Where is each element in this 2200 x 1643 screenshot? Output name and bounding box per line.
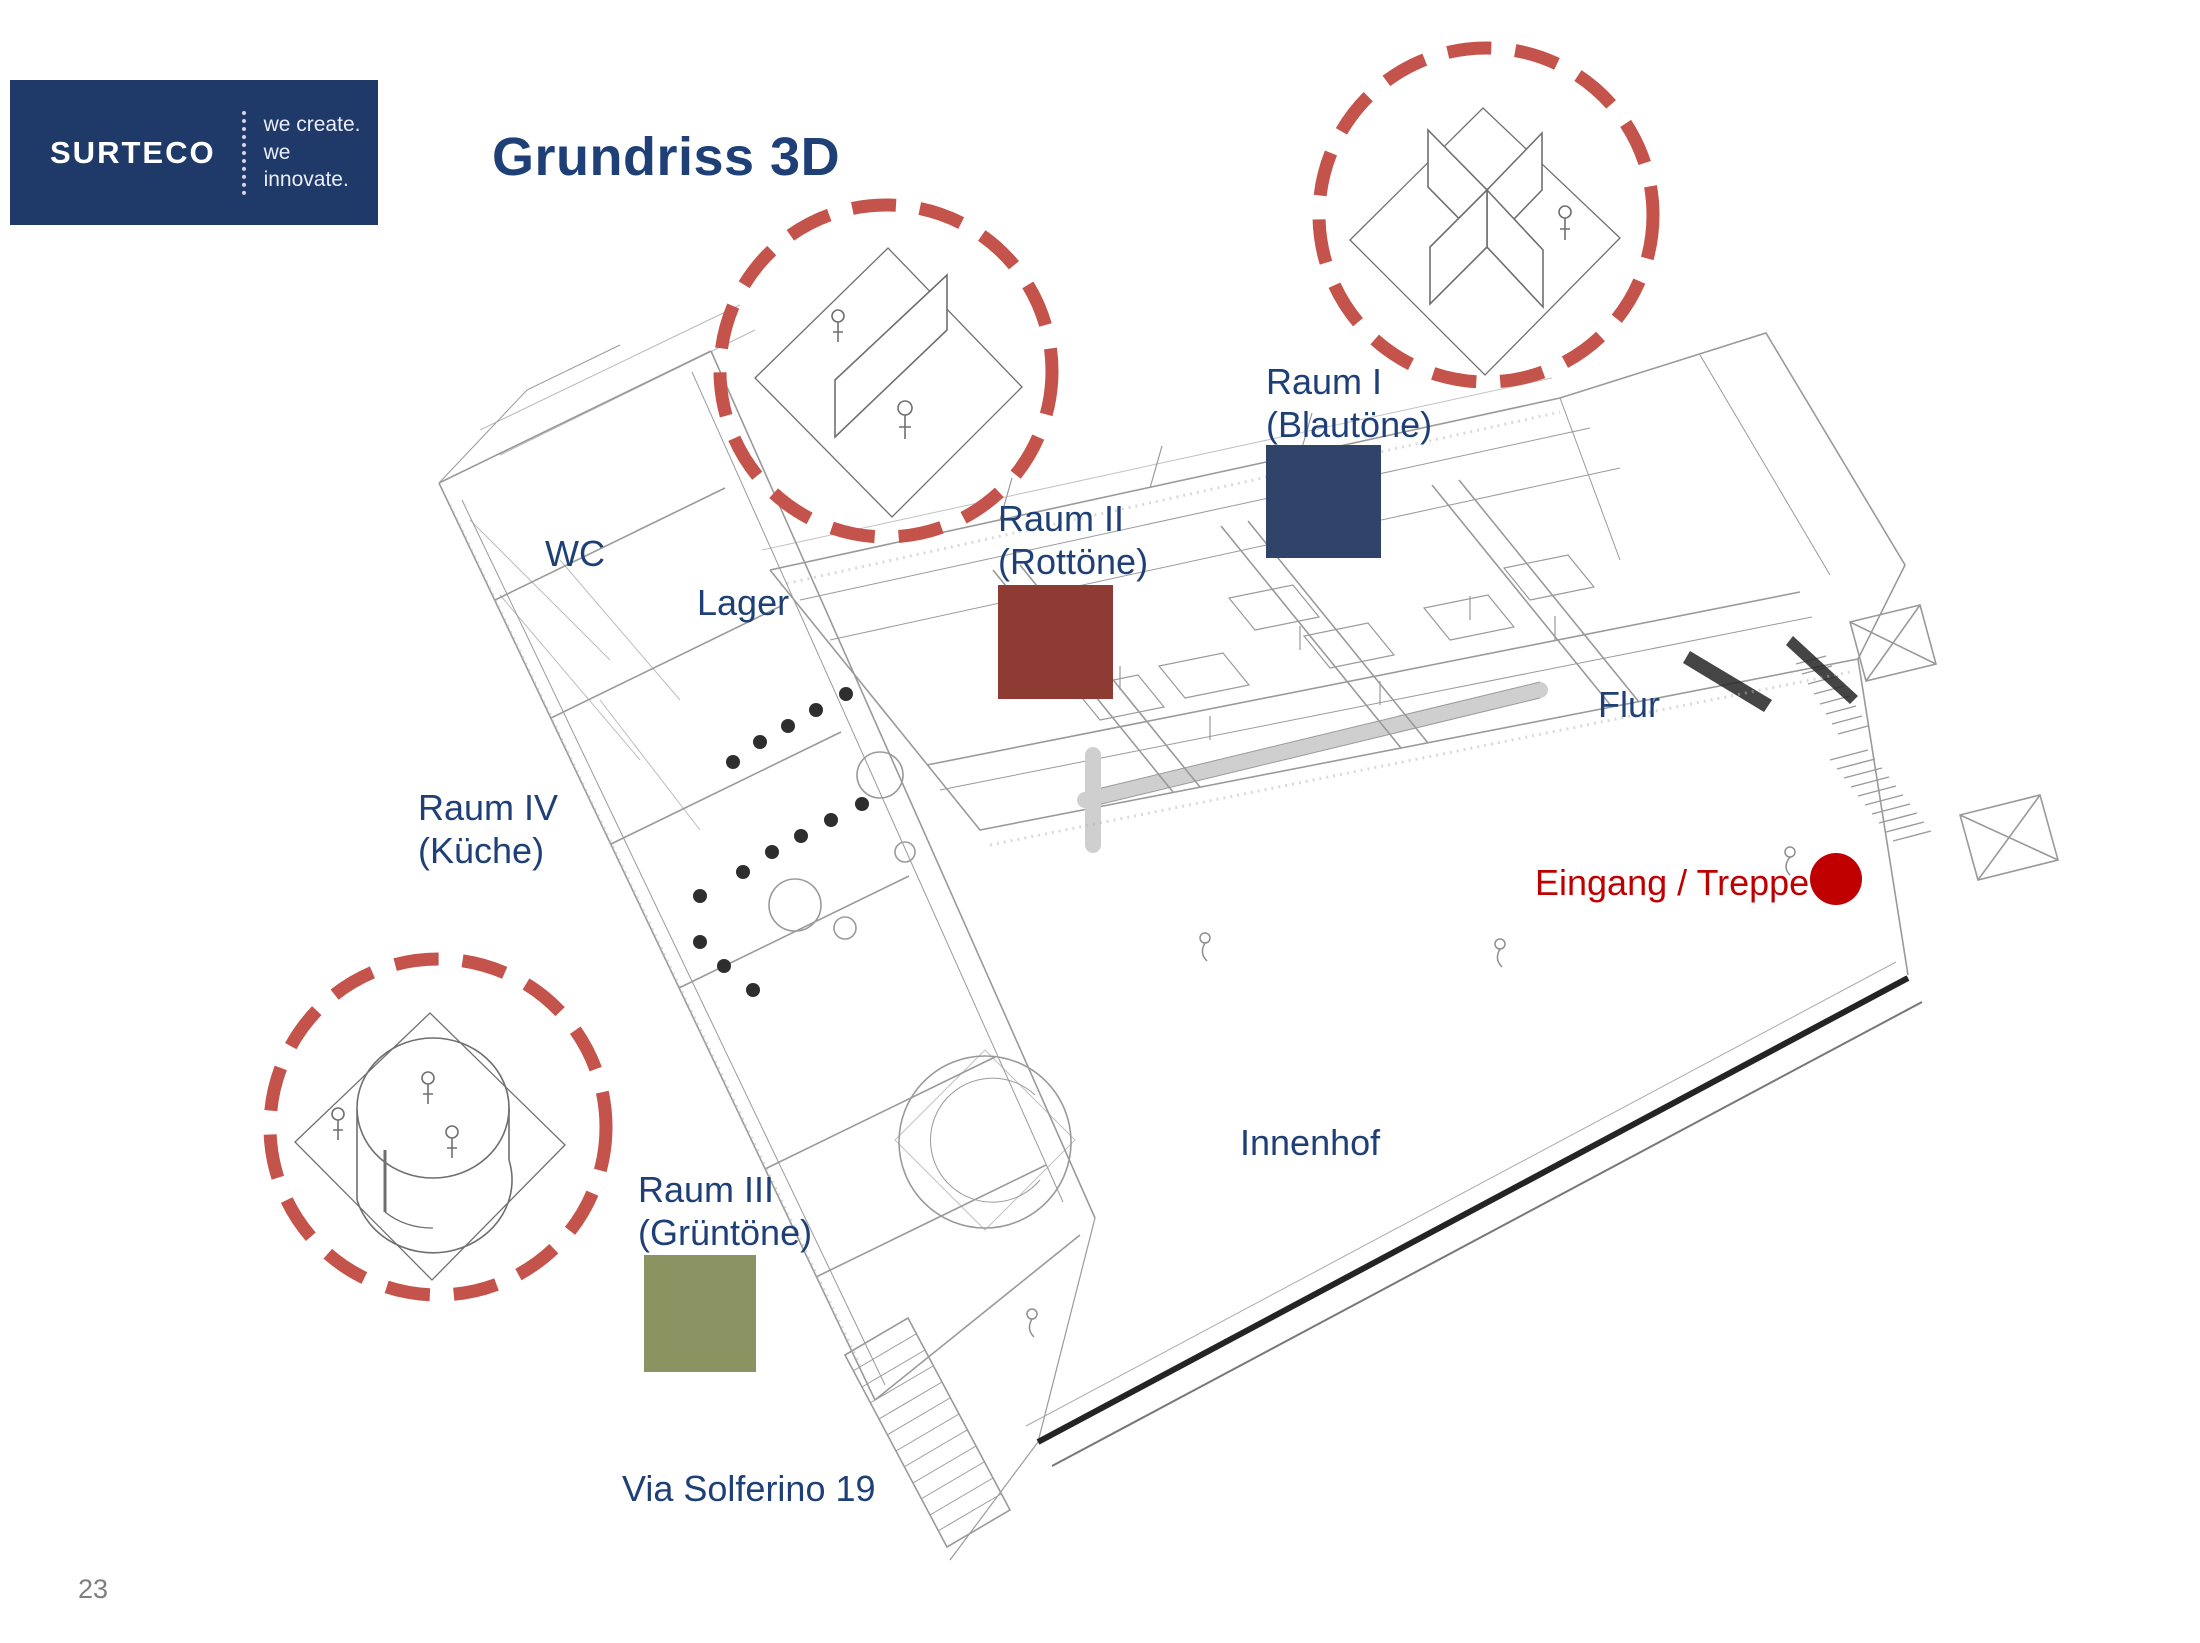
label-raum2: Raum II (Rottöne): [998, 497, 1148, 583]
label-wc: WC: [545, 532, 605, 575]
color-swatch-raum2-red: [998, 585, 1113, 699]
label-innenhof: Innenhof: [1240, 1121, 1380, 1164]
detail-sketch-raum1: [1350, 108, 1620, 375]
page-number: 23: [78, 1574, 108, 1605]
color-swatch-raum1-blue: [1266, 445, 1381, 558]
kitchen-chairs: [693, 687, 869, 997]
detail-circle-raum3: [270, 959, 606, 1295]
label-flur: Flur: [1598, 683, 1660, 726]
detail-sketch-raum3: [295, 1013, 565, 1280]
logo-divider: [242, 111, 246, 195]
people-figures: [1027, 847, 1795, 1337]
slide: SURTECO we create. we innovate. Grundris…: [0, 0, 2200, 1643]
label-eingang-treppe: Eingang / Treppe: [1535, 861, 1809, 904]
floor-plan-sketch: [0, 0, 2200, 1643]
label-raum3: Raum III (Grüntöne): [638, 1168, 812, 1254]
page-title: Grundriss 3D: [492, 126, 840, 188]
brand-tagline: we create. we innovate.: [264, 111, 378, 194]
color-swatch-raum3-green: [644, 1255, 756, 1372]
entrance-marker-dot: [1810, 853, 1862, 905]
label-raum4: Raum IV (Küche): [418, 786, 558, 872]
label-address: Via Solferino 19: [622, 1467, 876, 1510]
detail-sketch-raum2: [755, 248, 1022, 517]
brand-name: SURTECO: [50, 135, 216, 171]
brand-logo: SURTECO we create. we innovate.: [10, 80, 378, 225]
label-lager: Lager: [697, 581, 789, 624]
label-raum1: Raum I (Blautöne): [1266, 360, 1432, 446]
